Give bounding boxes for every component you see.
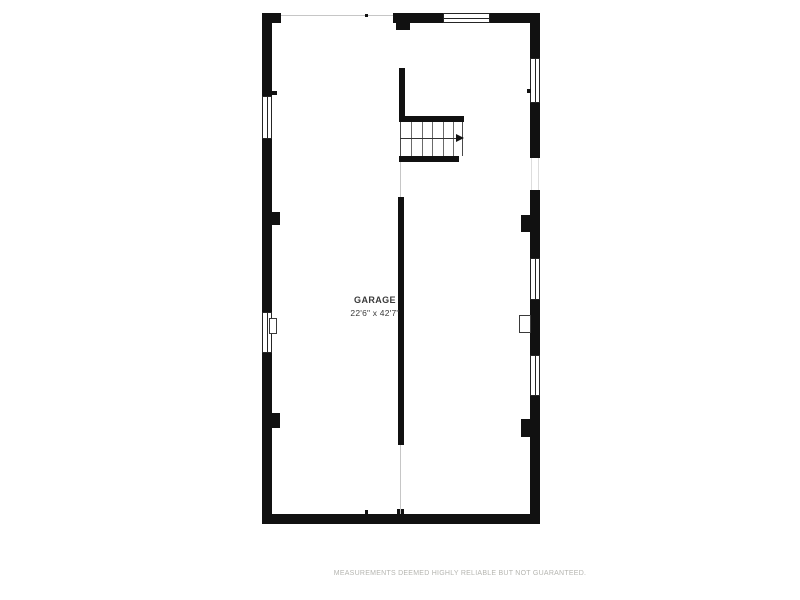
window-left-upper [262, 96, 272, 139]
room-label: GARAGE [305, 295, 445, 305]
wall-left-segment-2 [262, 139, 272, 312]
interior-opening-line-lower [400, 445, 401, 514]
opening-center-mark-top [365, 14, 368, 17]
pier-right-lower [521, 419, 530, 437]
window-fixture-right [519, 315, 531, 333]
window-tick-left [272, 91, 277, 95]
window-right-lower [530, 355, 540, 396]
window-right-middle [530, 258, 540, 300]
wall-left-segment-3 [262, 353, 272, 524]
wall-right-segment-4 [530, 300, 540, 355]
disclaimer-text: MEASUREMENTS DEEMED HIGHLY RELIABLE BUT … [260, 570, 660, 577]
doorway-edge-line-inner [531, 158, 532, 190]
stair-tread-line [411, 122, 412, 156]
interior-wall [398, 197, 404, 445]
stair-tread-line [443, 122, 444, 156]
stair-direction-line [400, 138, 456, 139]
pier-left-lower [272, 413, 280, 428]
wall-right-segment-3 [530, 190, 540, 258]
wall-right-segment-1 [530, 13, 540, 58]
wall-left-segment-1 [262, 13, 272, 96]
floorplan: GARAGE 22'6" x 42'7" MEASUREMENTS DEEMED… [0, 0, 800, 600]
doorway-edge-line-outer [538, 158, 539, 190]
stair-lower-wall [399, 156, 459, 162]
pier-left-upper [272, 212, 280, 225]
interior-opening-line-upper [400, 162, 401, 197]
stair-treads [400, 122, 463, 156]
wall-top-tab [396, 23, 410, 30]
stair-tread-line [453, 122, 454, 156]
stair-direction-arrow-icon [456, 134, 464, 142]
garage-door-opening-line [281, 15, 393, 16]
window-top [443, 13, 490, 23]
wall-right-segment-2 [530, 103, 540, 158]
room-dimensions: 22'6" x 42'7" [305, 308, 445, 318]
stair-tread-line [432, 122, 433, 156]
window-right-upper [530, 58, 540, 103]
window-fixture-left [269, 318, 277, 334]
wall-bottom [262, 514, 540, 524]
stair-tread-line [422, 122, 423, 156]
wall-top-mid-segment [393, 13, 443, 23]
pier-right-upper [521, 215, 530, 232]
wall-right-segment-5 [530, 396, 540, 524]
window-tick-right [527, 89, 531, 93]
stair-side-wall [399, 68, 405, 122]
opening-center-mark-bottom [365, 510, 368, 514]
